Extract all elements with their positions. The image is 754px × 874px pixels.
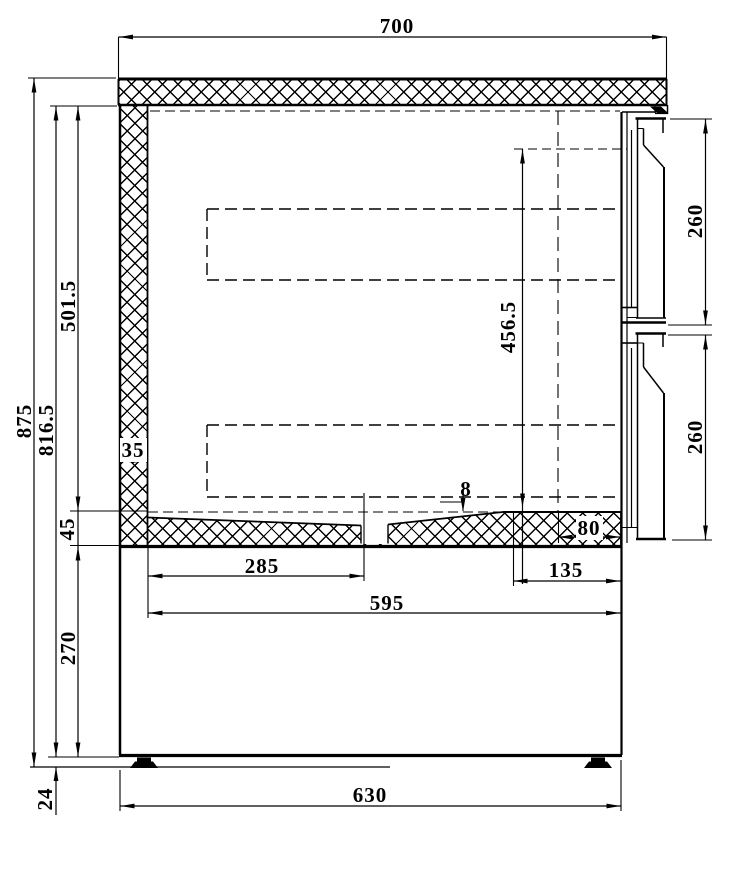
dim-label-height-feet: 24	[35, 784, 55, 814]
dim-label-opening-height: 456.5	[498, 296, 518, 358]
dim-label-height-interior: 501.5	[58, 275, 78, 337]
dim-label-width-top: 700	[367, 16, 427, 36]
drawing-linework	[0, 0, 754, 874]
dim-label-floor-slope: 8	[458, 479, 474, 499]
dim-label-drawer-bottom-height: 260	[685, 415, 705, 459]
dim-label-floor-thickness: 45	[57, 514, 77, 544]
tray-width-text: 80	[576, 516, 603, 540]
dim-label-height-total: 875	[14, 399, 34, 443]
dim-label-drawer-top-height: 260	[685, 199, 705, 243]
dim-label-wall-thickness: 35	[116, 440, 150, 460]
dim-label-span-left-floor: 285	[234, 556, 290, 576]
structure-and-dimension-lines	[28, 37, 712, 815]
dim-label-depth-interior: 595	[359, 593, 415, 613]
hidden-lines	[148, 111, 627, 512]
dimension-arrowheads	[32, 35, 708, 809]
dim-label-width-body: 630	[342, 785, 398, 805]
feet-and-fittings	[130, 107, 668, 769]
section-drawing: 700 875 816.5 501.5 45 270 24 456.5 260 …	[0, 0, 754, 874]
wall-thickness-text: 35	[120, 438, 147, 462]
dim-label-tray-width: 80	[572, 518, 606, 538]
dim-label-height-body: 816.5	[36, 399, 56, 461]
dim-label-span-right-floor: 135	[538, 560, 594, 580]
dim-label-height-base: 270	[58, 626, 78, 670]
